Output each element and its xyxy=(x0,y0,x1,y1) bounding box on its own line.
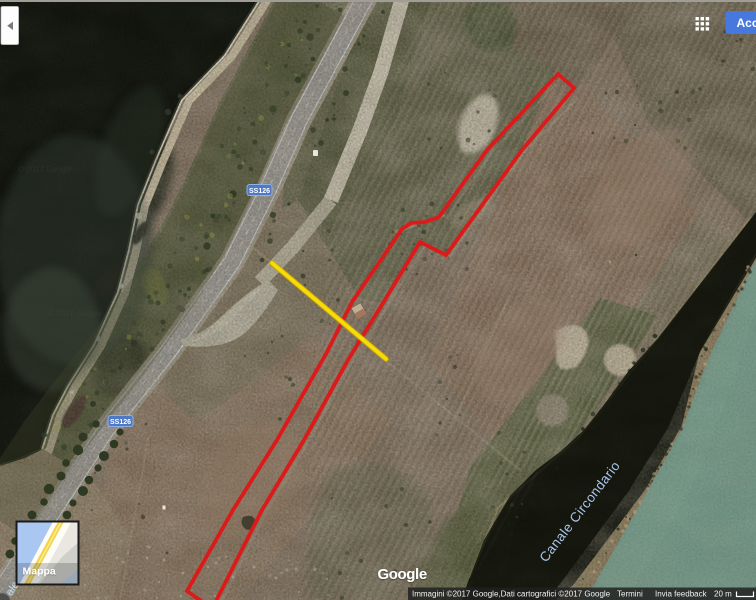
svg-text:Immagini ©2017 Google,Dati car: Immagini ©2017 Google,Dati cartografici … xyxy=(412,590,611,599)
svg-text:20 m: 20 m xyxy=(714,590,732,599)
svg-text:Acc: Acc xyxy=(737,16,756,30)
svg-text:Mappa: Mappa xyxy=(23,566,56,578)
svg-text:SS126: SS126 xyxy=(249,188,270,195)
svg-text:Google: Google xyxy=(378,566,427,583)
svg-text:SS126: SS126 xyxy=(110,419,131,426)
svg-text:Termini: Termini xyxy=(617,590,643,599)
svg-text:Invia feedback: Invia feedback xyxy=(655,590,708,599)
